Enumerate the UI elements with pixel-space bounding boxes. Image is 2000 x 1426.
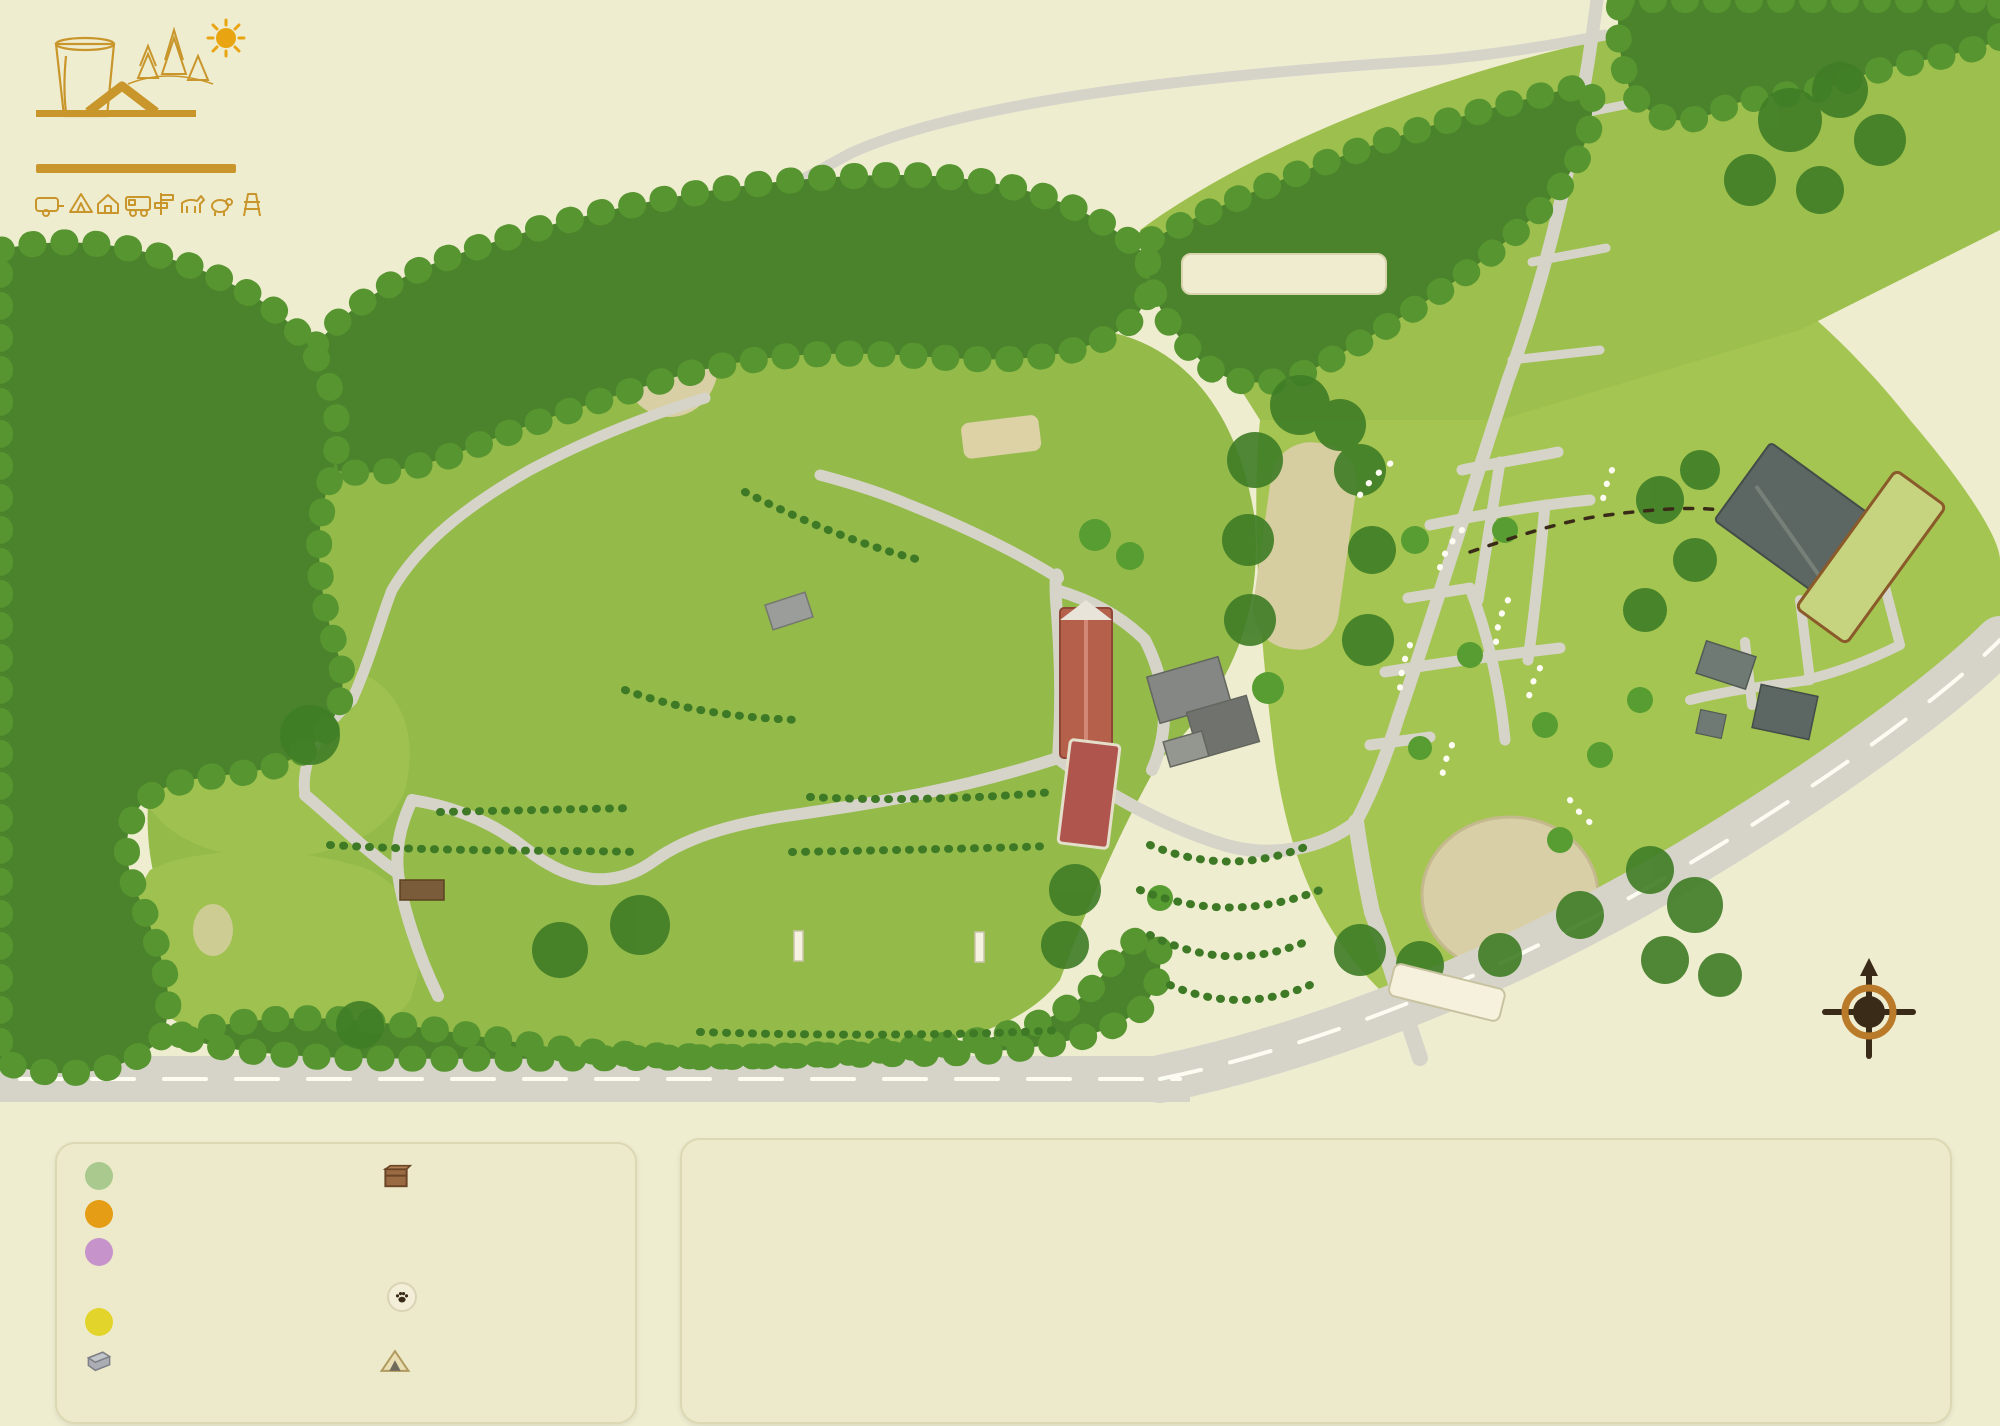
house-icon: [98, 195, 118, 213]
tent-icon: [70, 194, 92, 212]
tower-icon: [244, 194, 260, 216]
roof-icon: [36, 86, 196, 117]
paw-icon: [387, 1282, 417, 1312]
villatent-icon: [375, 1344, 415, 1378]
animal-icon: [212, 199, 232, 216]
legend-facilities: [680, 1138, 1952, 1424]
pines-icon: [128, 30, 213, 84]
swatch-sportveld: [85, 1308, 113, 1336]
signpost-icon: [155, 193, 173, 215]
caravan-icon: [36, 198, 64, 216]
mepperdennen-sign: [1182, 254, 1386, 294]
accommodation-icons-row: [34, 188, 294, 224]
chalet-icon: [79, 1346, 119, 1376]
logo-underline: [36, 164, 236, 173]
toiletgebouw2-building: [400, 880, 444, 900]
camper-van-icon: [126, 197, 150, 216]
sun-icon: [208, 20, 244, 56]
zwembad-building: [1060, 600, 1112, 758]
swatch-basis: [85, 1162, 113, 1190]
header: [28, 16, 668, 231]
tennis-court: [1058, 739, 1120, 848]
logo-drawing: [28, 16, 248, 166]
plattegrond-page: [0, 0, 2000, 1426]
legend-site-types: [55, 1142, 637, 1424]
swatch-basis-cai: [85, 1200, 113, 1228]
horse-small-icon: [182, 196, 204, 213]
bungalow-icon: [379, 1160, 413, 1194]
swatch-comfort: [85, 1238, 113, 1266]
